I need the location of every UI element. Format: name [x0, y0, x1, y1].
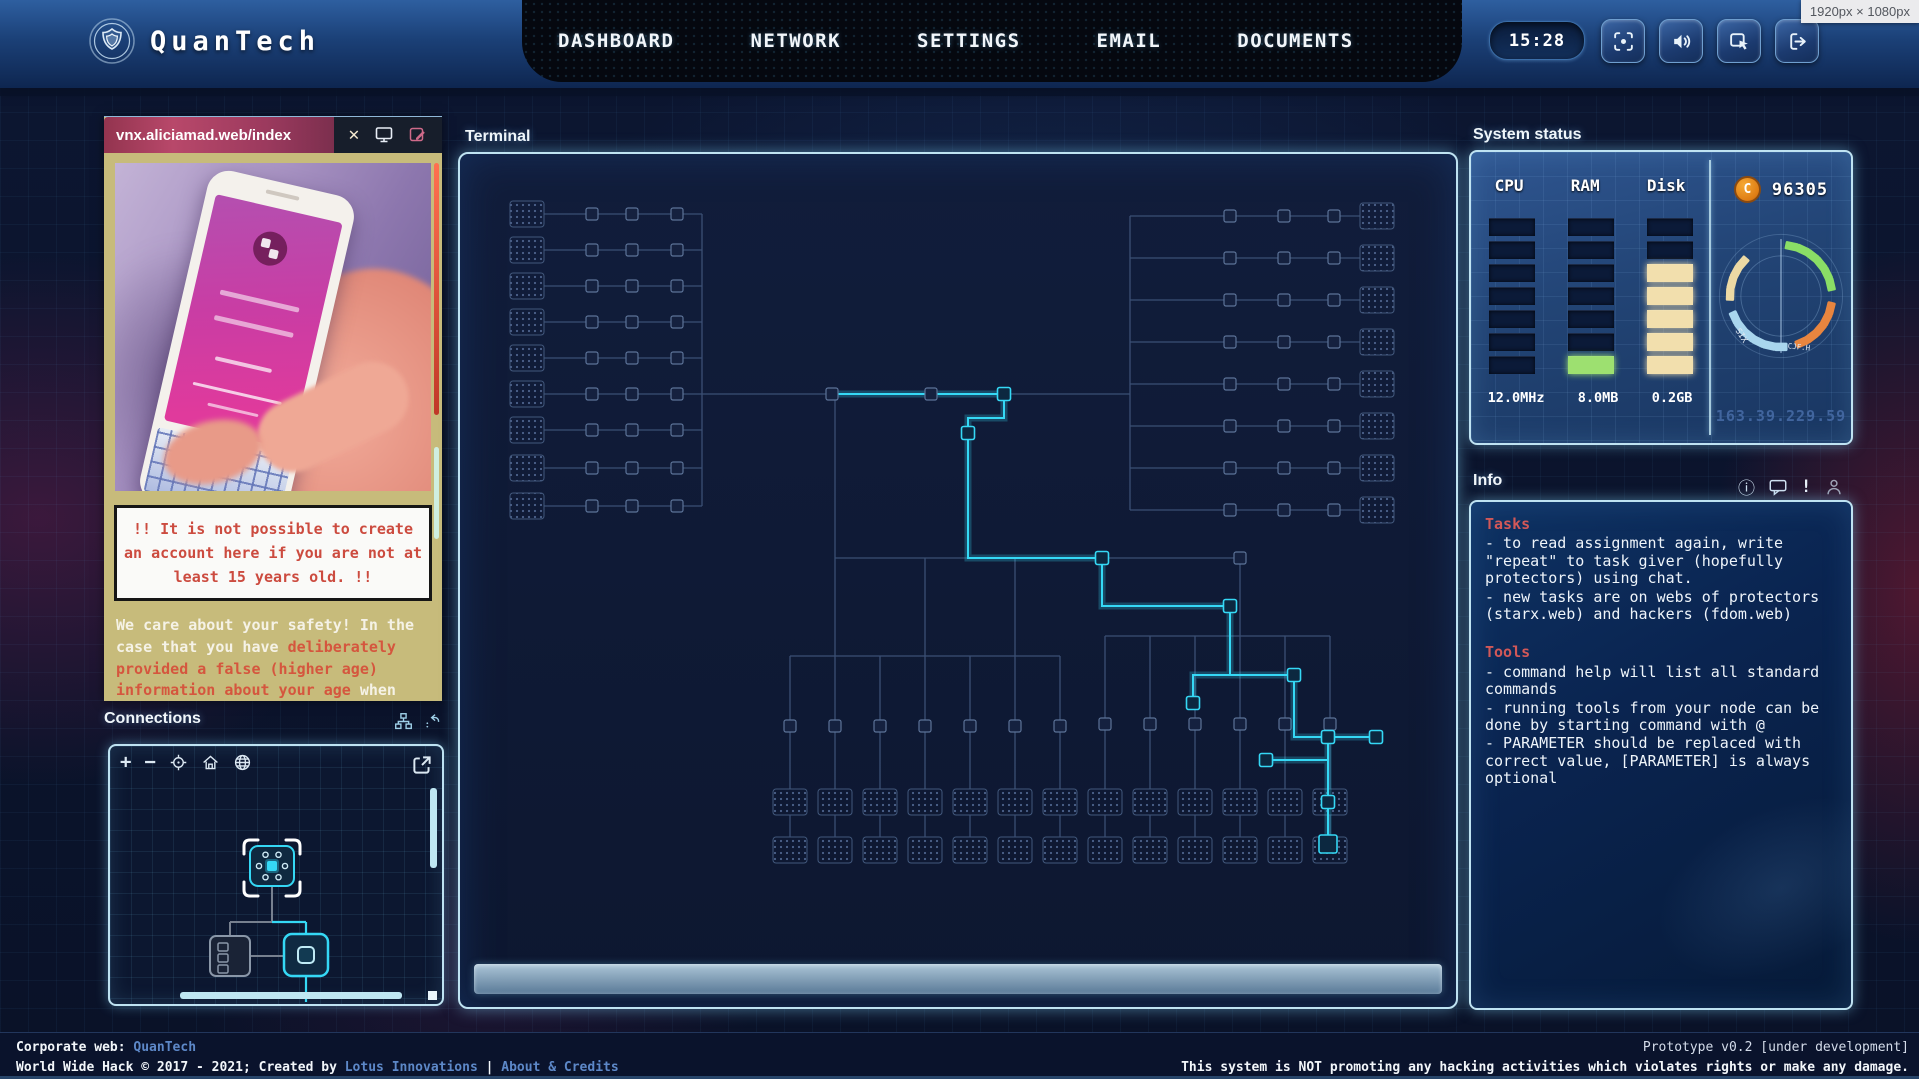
alert-icon[interactable]: ! [1801, 477, 1811, 497]
task-item: - to read assignment again, write "repea… [1485, 535, 1839, 587]
app-logo-icon [250, 228, 291, 269]
shield-logo-icon [88, 17, 136, 65]
sound-button[interactable] [1659, 19, 1703, 63]
nav-documents[interactable]: DOCUMENTS [1237, 30, 1353, 52]
ram-value: 8.0MB [1578, 390, 1619, 406]
connections-header-icons [394, 712, 442, 731]
cpu-value: 12.0MHz [1488, 390, 1545, 406]
tool-item: - running tools from your node can be do… [1485, 700, 1839, 735]
info-content: Tasks - to read assignment again, write … [1471, 502, 1851, 1008]
nav-settings[interactable]: SETTINGS [917, 30, 1021, 52]
chat-icon[interactable] [1768, 477, 1788, 497]
corporate-label: Corporate web: [16, 1040, 126, 1055]
close-icon[interactable]: ✕ [349, 126, 360, 144]
resource-labels: CPU RAM Disk [1471, 176, 1709, 195]
info-panel: Tasks - to read assignment again, write … [1469, 500, 1853, 1010]
tasks-heading: Tasks [1485, 516, 1839, 533]
creator-link[interactable]: Lotus Innovations [345, 1060, 478, 1075]
nav-email[interactable]: EMAIL [1097, 30, 1162, 52]
task-item: - new tasks are on webs of protectors (s… [1485, 589, 1839, 624]
tool-item: - PARAMETER should be replaced with corr… [1485, 735, 1839, 787]
redirect-icon[interactable] [423, 712, 442, 731]
scrollbar-thumb-red[interactable] [434, 163, 439, 415]
cpu-label: CPU [1495, 176, 1524, 195]
minimap-node-cyan[interactable] [284, 934, 328, 976]
webpage-photo [115, 163, 431, 491]
command-input-bar[interactable] [474, 964, 1442, 994]
scrollbar-thumb-blue[interactable] [434, 447, 439, 539]
footer-left: Corporate web: QuanTech World Wide Hack … [0, 1033, 619, 1079]
nav-strip: DASHBOARD NETWORK SETTINGS EMAIL DOCUMEN… [522, 0, 1462, 82]
info-circle-icon[interactable]: ⓘ [1738, 474, 1755, 499]
sitemap-icon[interactable] [394, 712, 413, 731]
monitor-icon[interactable] [374, 125, 394, 145]
ram-bar [1568, 208, 1614, 376]
radial-gauge: SIXCJF.H [1711, 218, 1851, 374]
credits-amount: 96305 [1772, 180, 1828, 200]
system-status-panel: CPU RAM Disk 12.0MHz 8.0MB 0.2GB C 96305… [1469, 150, 1853, 445]
credits-row: C 96305 [1711, 176, 1851, 203]
url-bar[interactable]: vnx.aliciamad.web/index [104, 117, 334, 153]
footer-separator: | [478, 1060, 501, 1075]
copyright-text: World Wide Hack © 2017 - 2021; Created b… [16, 1060, 345, 1075]
zoom-out-icon[interactable]: − [144, 753, 155, 772]
minimap-hscrollbar[interactable] [180, 992, 402, 999]
browser-controls: ✕ [334, 117, 442, 153]
globe-icon[interactable] [233, 753, 252, 772]
connections-minimap[interactable]: + − [108, 744, 444, 1006]
disk-label: Disk [1647, 176, 1686, 195]
disk-value: 0.2GB [1652, 390, 1693, 406]
game-screen: QuanTech DASHBOARD NETWORK SETTINGS EMAI… [0, 0, 1919, 1079]
ip-address: 163.39.229.59 [1711, 407, 1851, 425]
home-icon[interactable] [201, 753, 220, 772]
nav-dashboard[interactable]: DASHBOARD [558, 30, 674, 52]
network-map[interactable] [472, 166, 1444, 956]
ram-label: RAM [1571, 176, 1600, 195]
info-header-icons: ⓘ ! [1738, 474, 1844, 499]
safety-text: We care about your safety! In the case t… [116, 615, 430, 701]
terminal-title: Terminal [465, 128, 531, 146]
external-link-icon [410, 753, 434, 777]
terminal-panel [458, 152, 1458, 1009]
tools-heading: Tools [1485, 644, 1839, 661]
browser-url-row: vnx.aliciamad.web/index ✕ [104, 117, 442, 153]
exit-icon [1786, 30, 1809, 53]
speaker-icon [1670, 30, 1693, 53]
clock: 15:28 [1489, 21, 1585, 60]
pointer-share-button[interactable] [1717, 19, 1761, 63]
resource-bars [1489, 208, 1693, 376]
logout-button[interactable] [1775, 19, 1819, 63]
minimap-corner-thumb[interactable] [428, 991, 437, 1000]
nav-network[interactable]: NETWORK [750, 30, 841, 52]
resource-values: 12.0MHz 8.0MB 0.2GB [1471, 390, 1709, 406]
minimap-graph[interactable] [110, 746, 442, 1004]
fullscreen-button[interactable] [1601, 19, 1645, 63]
edit-icon[interactable] [408, 126, 427, 145]
tool-item: - command help will list all standard co… [1485, 664, 1839, 699]
disk-bar [1647, 208, 1693, 376]
corporate-link[interactable]: QuanTech [133, 1040, 196, 1055]
element-size-tooltip: 1920px × 1080px [1801, 0, 1919, 23]
version-label: Prototype v0.2 [under development] [1181, 1038, 1909, 1058]
footer: Corporate web: QuanTech World Wide Hack … [0, 1032, 1919, 1079]
connections-title: Connections [104, 710, 201, 728]
logo[interactable]: QuanTech [88, 17, 320, 65]
age-warning-box: !! It is not possible to create an accou… [114, 505, 432, 601]
info-title: Info [1473, 472, 1502, 490]
minimap-node-grey[interactable] [210, 936, 250, 976]
target-icon[interactable] [169, 753, 188, 772]
top-bar: QuanTech DASHBOARD NETWORK SETTINGS EMAI… [0, 0, 1919, 88]
system-status-title: System status [1473, 126, 1582, 144]
expand-map-button[interactable] [410, 753, 434, 781]
person-icon[interactable] [1824, 477, 1844, 497]
disclaimer-text: This system is NOT promoting any hacking… [1181, 1058, 1909, 1078]
cpu-bar [1489, 208, 1535, 376]
minimap-vscrollbar[interactable] [430, 788, 437, 868]
about-credits-link[interactable]: About & Credits [501, 1060, 618, 1075]
cursor-window-icon [1728, 30, 1751, 53]
footer-right: Prototype v0.2 [under development] This … [1181, 1033, 1919, 1079]
main-nav: DASHBOARD NETWORK SETTINGS EMAIL DOCUMEN… [558, 0, 1354, 82]
browser-window: vnx.aliciamad.web/index ✕ [104, 116, 442, 701]
minimap-toolbar: + − [120, 753, 252, 772]
svg-text:CJF.H: CJF.H [1787, 341, 1810, 352]
logo-text: QuanTech [150, 26, 320, 57]
map-highlight-node[interactable] [1319, 835, 1337, 853]
zoom-in-icon[interactable]: + [120, 753, 131, 772]
coin-icon: C [1734, 176, 1761, 203]
fullscreen-icon [1612, 30, 1635, 53]
browser-scrollbar[interactable] [434, 159, 439, 695]
